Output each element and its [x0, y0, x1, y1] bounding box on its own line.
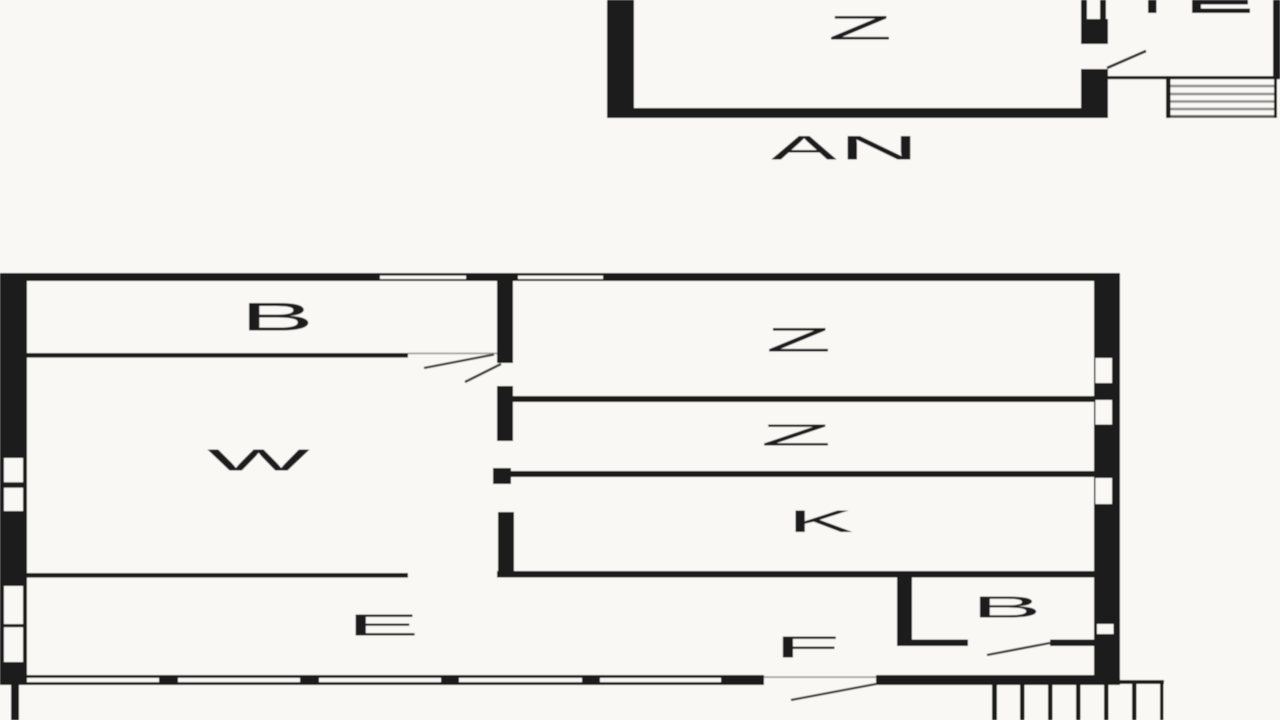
svg-text:Z: Z — [760, 418, 831, 452]
svg-text:F: F — [774, 630, 840, 664]
svg-text:Z: Z — [828, 8, 892, 47]
svg-text:W: W — [207, 443, 311, 477]
svg-text:N: N — [839, 128, 920, 167]
svg-text:Z: Z — [766, 320, 831, 359]
svg-text:E: E — [347, 608, 420, 642]
svg-text:A: A — [771, 128, 838, 167]
svg-text:B: B — [971, 591, 1042, 625]
svg-text:B: B — [240, 294, 314, 339]
svg-text:K: K — [787, 503, 853, 539]
